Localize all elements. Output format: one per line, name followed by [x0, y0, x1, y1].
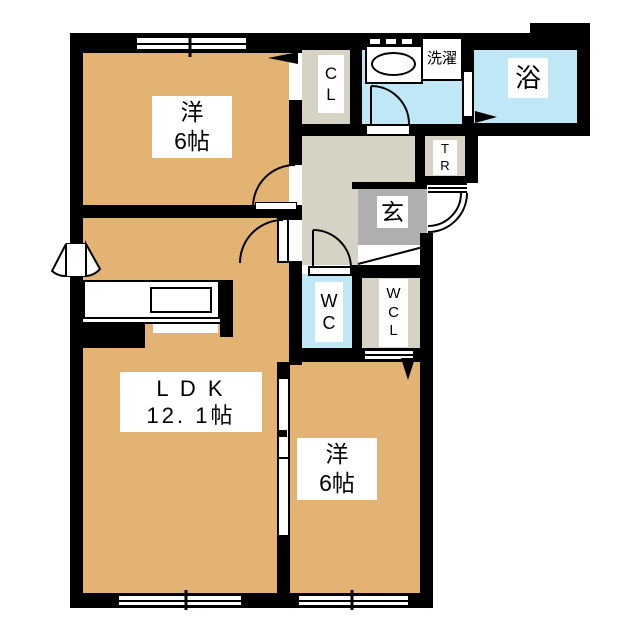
laundry-label: 洗濯: [425, 47, 459, 71]
kitchen-wall-bottom-left: [83, 323, 145, 348]
hall-bottom-wall: [352, 265, 430, 278]
ldk-door-frame: [289, 218, 302, 263]
vanity-faucet-3: [400, 37, 414, 46]
bath-label: 浴: [508, 58, 548, 98]
walk-in-closet-label: W C L: [379, 279, 408, 347]
bath-door-leaf: [462, 70, 474, 118]
hallway-floor-top: [302, 136, 415, 182]
trunk-room-label: T R: [433, 140, 457, 175]
kitchen-shelf: [153, 324, 218, 333]
closet-right-wall: [350, 50, 362, 124]
bedroom2-sliding-door: [277, 377, 290, 537]
vanity-basin: [371, 52, 416, 76]
closet-cl-label: C L: [318, 55, 344, 113]
service-vent-leaf: [66, 243, 86, 277]
genkan-top-wall: [352, 182, 427, 189]
toilet-label: W C: [315, 282, 343, 342]
entrance-door-arc-inner: [428, 193, 461, 226]
floor-plan: 洋 6帖 L D K 12. 1帖 洋 6帖 C L 洗濯 浴 T R 玄 W …: [0, 0, 640, 640]
hallway-floor-left: [302, 182, 358, 265]
ldk-door-leaf: [277, 218, 289, 263]
ldk-window: [117, 594, 243, 607]
kitchen-sink: [150, 287, 212, 313]
bedroom1-door-frame: [289, 163, 302, 207]
wc-wcl-divider: [352, 265, 362, 352]
vanity-faucet-1: [368, 37, 382, 46]
bath-bottom-wall: [462, 123, 590, 136]
service-vent-fan-left: [52, 244, 66, 276]
bedroom1-label: 洋 6帖: [152, 96, 232, 158]
entrance-label: 玄: [377, 196, 408, 228]
kitchen-wall-right: [220, 280, 233, 337]
closet-cl-opening: [289, 53, 302, 100]
bedroom2-entry-sill: [365, 349, 413, 361]
bedroom1-door-sill: [255, 202, 297, 210]
left-wall: [70, 33, 83, 608]
bath-right-wall: [577, 23, 590, 136]
vanity-faucet-2: [384, 37, 398, 46]
toilet-door-sill: [308, 266, 352, 276]
entrance-door: [428, 183, 467, 193]
genkan-step: [358, 245, 427, 265]
bedroom2-window: [297, 594, 410, 607]
top-wall-right: [462, 33, 530, 50]
entrance-door-arc-outer: [428, 193, 467, 232]
bedroom2-label: 洋 6帖: [297, 438, 377, 500]
ldk-label: L D K 12. 1帖: [120, 372, 262, 432]
right-wall-lower: [420, 233, 433, 593]
washroom-door-sill: [367, 124, 409, 136]
bedroom1-window: [135, 36, 248, 51]
